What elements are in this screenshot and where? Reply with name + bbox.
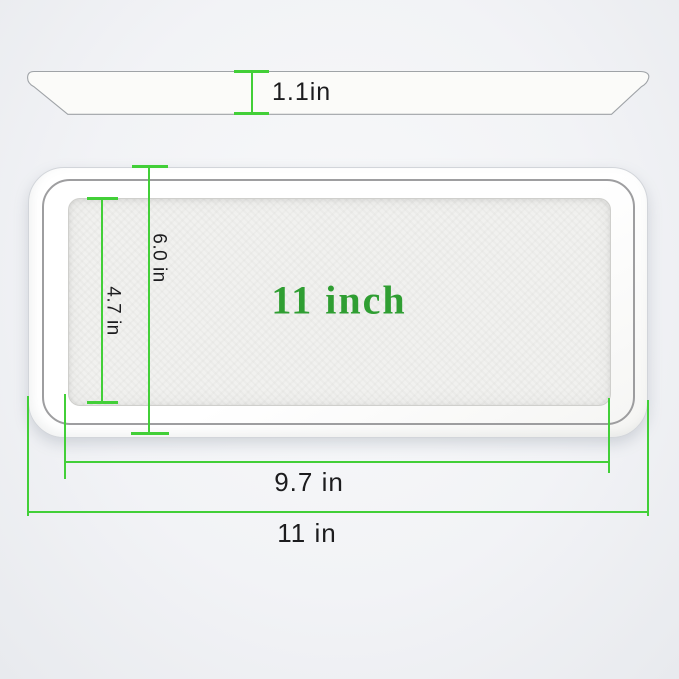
dim-ext-left-inner-width — [64, 394, 66, 479]
dim-line-outer-height — [148, 167, 150, 434]
dim-ext-right-outer-width — [647, 400, 649, 516]
tray-size-label: 11 inch — [271, 277, 406, 324]
dim-tick-bottom-inner-height — [87, 401, 118, 404]
dim-label-inner-height: 4.7 in — [104, 286, 123, 335]
dim-ext-left-outer-width — [27, 396, 29, 516]
dim-label-inner-width: 9.7 in — [274, 469, 344, 495]
dim-tick-top-outer-height — [132, 165, 168, 168]
dim-tick-bottom-outer-height — [131, 432, 169, 435]
dim-line-inner-width — [64, 461, 610, 463]
tray-side-view — [0, 0, 679, 140]
dim-line-height — [251, 71, 253, 114]
dim-label-outer-height: 6.0 in — [150, 233, 169, 282]
tray-side-profile — [28, 72, 649, 115]
dim-tick-bottom-height — [234, 112, 269, 115]
dim-label-height: 1.1in — [272, 80, 331, 105]
dim-label-outer-width: 11 in — [277, 520, 336, 546]
dim-line-outer-width — [27, 511, 649, 513]
product-dimension-image: 1.1in 11 inch 6.0 in 4.7 in 9.7 in 11 in — [0, 0, 679, 679]
